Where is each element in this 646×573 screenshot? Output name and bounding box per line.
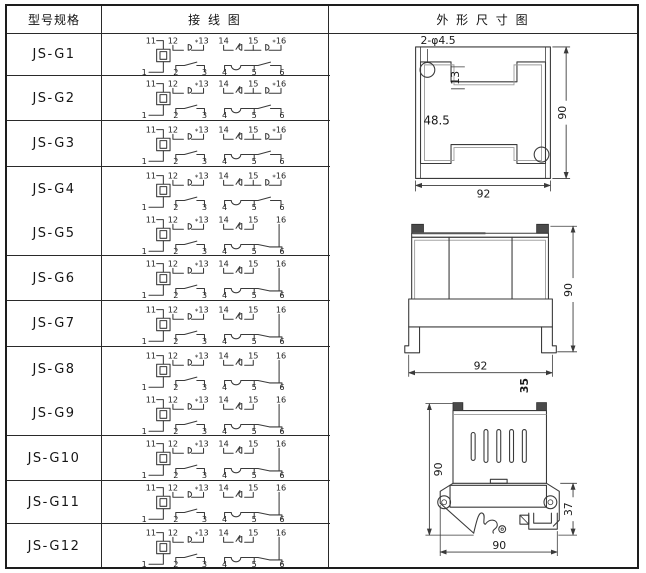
wiring-diagram: 11 12 13 14 15 16 1 2 3 4 5 6 bbox=[109, 302, 321, 346]
model-label: JS-G8 bbox=[32, 362, 75, 377]
terminal-16: 16 bbox=[276, 214, 286, 224]
model-cell: JS-G7 bbox=[7, 301, 102, 346]
terminal-13: 13 bbox=[198, 439, 208, 449]
model-cell: JS-G12 bbox=[7, 524, 102, 569]
terminal-14: 14 bbox=[218, 79, 228, 89]
model-label: JS-G4 bbox=[32, 182, 75, 197]
terminal-12: 12 bbox=[168, 79, 178, 89]
terminal-14: 14 bbox=[218, 527, 228, 537]
terminal-14: 14 bbox=[218, 35, 228, 45]
terminal-16: 16 bbox=[276, 259, 286, 269]
terminal-12: 12 bbox=[168, 304, 178, 314]
wiring-diagram: 11 12 13 14 15 16 1 2 3 4 5 6 bbox=[109, 122, 321, 166]
wiring-diagram: 11 12 13 14 15 16 1 2 3 4 5 6 bbox=[109, 525, 321, 569]
terminal-15: 15 bbox=[248, 439, 258, 449]
wiring-cell: 11 12 13 14 15 16 1 2 3 4 5 6 bbox=[102, 524, 329, 569]
wiring-cell: 11 12 13 14 15 16 1 2 3 4 5 6 bbox=[102, 167, 329, 212]
terminal-11: 11 bbox=[146, 35, 156, 45]
model-cell: JS-G3 bbox=[7, 121, 102, 166]
terminal-16: 16 bbox=[276, 304, 286, 314]
terminal-13: 13 bbox=[198, 394, 208, 404]
terminal-6: 6 bbox=[279, 202, 284, 212]
model-cell: JS-G11 bbox=[7, 481, 102, 523]
outline-drawings: 13 2-φ4.5 48.5 90 92 bbox=[330, 34, 637, 567]
terminal-16: 16 bbox=[276, 439, 286, 449]
terminal-11: 11 bbox=[146, 214, 156, 224]
table-header: 型号规格 接 线 图 外 形 尺 寸 图 bbox=[7, 6, 637, 34]
terminal-12: 12 bbox=[168, 394, 178, 404]
terminal-14: 14 bbox=[218, 304, 228, 314]
terminal-1: 1 bbox=[142, 470, 147, 480]
outline-dimension-cell: 13 2-φ4.5 48.5 90 92 bbox=[330, 34, 637, 567]
terminal-13: 13 bbox=[198, 259, 208, 269]
wiring-diagram: 11 12 13 14 15 16 1 2 3 4 5 6 bbox=[109, 256, 321, 300]
front-depth-dim: 35 bbox=[518, 378, 531, 393]
terminal-12: 12 bbox=[168, 35, 178, 45]
relay-spec-table: 型号规格 接 线 图 外 形 尺 寸 图 JS-G1 11 12 13 14 1… bbox=[5, 4, 639, 569]
terminal-1: 1 bbox=[142, 559, 147, 569]
terminal-1: 1 bbox=[142, 67, 147, 77]
terminal-13: 13 bbox=[198, 483, 208, 493]
model-cell: JS-G5 bbox=[7, 212, 102, 255]
terminal-12: 12 bbox=[168, 527, 178, 537]
model-cell: JS-G8 bbox=[7, 347, 102, 392]
terminal-11: 11 bbox=[146, 170, 156, 180]
model-rows: JS-G1 11 12 13 14 15 16 1 2 3 4 5 6 bbox=[7, 34, 330, 569]
terminal-14: 14 bbox=[218, 394, 228, 404]
wiring-diagram: 11 12 13 14 15 16 1 2 3 4 5 6 bbox=[109, 436, 321, 480]
table-row: JS-G12 11 12 13 14 15 16 1 2 3 4 5 6 bbox=[7, 524, 330, 569]
panel-width-dim: 92 bbox=[477, 187, 491, 200]
model-label: JS-G10 bbox=[28, 451, 81, 466]
table-row: JS-G7 11 12 13 14 15 16 1 2 3 4 5 6 bbox=[7, 301, 330, 347]
terminal-15: 15 bbox=[248, 170, 258, 180]
wiring-cell: 11 12 13 14 15 16 1 2 3 4 5 6 bbox=[102, 301, 329, 346]
din-rail-profile bbox=[520, 513, 557, 529]
table-row: JS-G3 11 12 13 14 15 16 1 2 3 4 5 6 bbox=[7, 121, 330, 167]
panel-cutout-dim: 48.5 bbox=[423, 114, 449, 128]
terminal-15: 15 bbox=[248, 79, 258, 89]
terminal-15: 15 bbox=[248, 35, 258, 45]
model-label: JS-G11 bbox=[28, 495, 81, 510]
model-label: JS-G1 bbox=[32, 47, 75, 62]
terminal-15: 15 bbox=[248, 259, 258, 269]
model-label: JS-G6 bbox=[32, 271, 75, 286]
terminal-6: 6 bbox=[279, 156, 284, 166]
terminal-13: 13 bbox=[198, 79, 208, 89]
table-row: JS-G11 11 12 13 14 15 16 1 2 3 4 5 6 bbox=[7, 481, 330, 524]
wiring-diagram: 11 12 13 14 15 16 1 2 3 4 5 6 bbox=[109, 480, 321, 524]
wiring-cell: 11 12 13 14 15 16 1 2 3 4 5 6 bbox=[102, 436, 329, 480]
terminal-13: 13 bbox=[198, 527, 208, 537]
terminal-12: 12 bbox=[168, 350, 178, 360]
terminal-1: 1 bbox=[142, 156, 147, 166]
model-label: JS-G9 bbox=[32, 406, 75, 421]
table-row: JS-G9 11 12 13 14 15 16 1 2 3 4 5 6 bbox=[7, 392, 330, 436]
wiring-diagram: 11 12 13 14 15 16 1 2 3 4 5 6 bbox=[109, 212, 321, 256]
terminal-12: 12 bbox=[168, 259, 178, 269]
table-row: JS-G10 11 12 13 14 15 16 1 2 3 4 5 6 bbox=[7, 436, 330, 481]
model-label: JS-G12 bbox=[28, 539, 81, 554]
terminal-12: 12 bbox=[168, 170, 178, 180]
panel-holes-note: 2-φ4.5 bbox=[421, 34, 456, 47]
terminal-16: 16 bbox=[276, 527, 286, 537]
terminal-11: 11 bbox=[146, 527, 156, 537]
wiring-cell: 11 12 13 14 15 16 1 2 3 4 5 6 bbox=[102, 256, 329, 300]
model-cell: JS-G10 bbox=[7, 436, 102, 480]
side-height-dim: 90 bbox=[432, 462, 445, 476]
terminal-15: 15 bbox=[248, 350, 258, 360]
wiring-cell: 11 12 13 14 15 16 1 2 3 4 5 6 bbox=[102, 34, 329, 75]
front-view-drawing: 92 90 35 bbox=[405, 224, 577, 393]
terminal-1: 1 bbox=[142, 336, 147, 346]
wiring-cell: 11 12 13 14 15 16 1 2 3 4 5 6 bbox=[102, 121, 329, 166]
terminal-15: 15 bbox=[248, 214, 258, 224]
table-row: JS-G6 11 12 13 14 15 16 1 2 3 4 5 6 bbox=[7, 256, 330, 301]
terminal-6: 6 bbox=[279, 110, 284, 120]
terminal-12: 12 bbox=[168, 214, 178, 224]
terminal-12: 12 bbox=[168, 483, 178, 493]
wiring-cell: 11 12 13 14 15 16 1 2 3 4 5 6 bbox=[102, 392, 329, 435]
terminal-11: 11 bbox=[146, 394, 156, 404]
terminal-1: 1 bbox=[142, 290, 147, 300]
terminal-16: 16 bbox=[276, 394, 286, 404]
terminal-14: 14 bbox=[218, 259, 228, 269]
model-label: JS-G7 bbox=[32, 316, 75, 331]
wiring-diagram: 11 12 13 14 15 16 1 2 3 4 5 6 bbox=[109, 348, 321, 392]
wiring-diagram: 11 12 13 14 15 16 1 2 3 4 5 6 bbox=[109, 168, 321, 212]
wiring-cell: 11 12 13 14 15 16 1 2 3 4 5 6 bbox=[102, 481, 329, 523]
terminal-1: 1 bbox=[142, 202, 147, 212]
terminal-6: 6 bbox=[279, 67, 284, 77]
terminal-16: 16 bbox=[276, 79, 286, 89]
terminal-11: 11 bbox=[146, 304, 156, 314]
terminal-14: 14 bbox=[218, 439, 228, 449]
terminal-1: 1 bbox=[142, 110, 147, 120]
terminal-1: 1 bbox=[142, 382, 147, 392]
terminal-11: 11 bbox=[146, 350, 156, 360]
terminal-15: 15 bbox=[248, 527, 258, 537]
terminal-11: 11 bbox=[146, 483, 156, 493]
table-row: JS-G5 11 12 13 14 15 16 1 2 3 4 5 6 bbox=[7, 212, 330, 256]
terminal-11: 11 bbox=[146, 439, 156, 449]
model-label: JS-G2 bbox=[32, 91, 75, 106]
panel-height-dim: 90 bbox=[556, 106, 569, 120]
terminal-16: 16 bbox=[276, 483, 286, 493]
table-row: JS-G1 11 12 13 14 15 16 1 2 3 4 5 6 bbox=[7, 34, 330, 76]
terminal-15: 15 bbox=[248, 483, 258, 493]
terminal-14: 14 bbox=[218, 124, 228, 134]
side-view-drawing: 90 37 90 bbox=[425, 403, 577, 556]
terminal-14: 14 bbox=[218, 170, 228, 180]
table-row: JS-G8 11 12 13 14 15 16 1 2 3 4 5 6 bbox=[7, 347, 330, 392]
side-width-dim: 90 bbox=[492, 539, 506, 552]
terminal-15: 15 bbox=[248, 304, 258, 314]
model-cell: JS-G4 bbox=[7, 167, 102, 212]
terminal-11: 11 bbox=[146, 79, 156, 89]
terminal-13: 13 bbox=[198, 170, 208, 180]
terminal-11: 11 bbox=[146, 124, 156, 134]
wiring-diagram: 11 12 13 14 15 16 1 2 3 4 5 6 bbox=[109, 392, 321, 436]
terminal-13: 13 bbox=[198, 124, 208, 134]
wiring-cell: 11 12 13 14 15 16 1 2 3 4 5 6 bbox=[102, 76, 329, 120]
table-body: JS-G1 11 12 13 14 15 16 1 2 3 4 5 6 bbox=[7, 34, 637, 567]
terminal-15: 15 bbox=[248, 394, 258, 404]
table-row: JS-G4 11 12 13 14 15 16 1 2 3 4 5 6 bbox=[7, 167, 330, 212]
terminal-1: 1 bbox=[142, 246, 147, 256]
terminal-14: 14 bbox=[218, 214, 228, 224]
panel-notch-dim: 13 bbox=[449, 71, 462, 85]
terminal-12: 12 bbox=[168, 124, 178, 134]
header-model-spec: 型号规格 bbox=[7, 6, 102, 33]
terminal-13: 13 bbox=[198, 35, 208, 45]
terminal-16: 16 bbox=[276, 170, 286, 180]
table-row: JS-G2 11 12 13 14 15 16 1 2 3 4 5 6 bbox=[7, 76, 330, 121]
model-cell: JS-G1 bbox=[7, 34, 102, 75]
terminal-16: 16 bbox=[276, 124, 286, 134]
header-outline-dims: 外 形 尺 寸 图 bbox=[329, 6, 637, 33]
wiring-cell: 11 12 13 14 15 16 1 2 3 4 5 6 bbox=[102, 212, 329, 255]
terminal-11: 11 bbox=[146, 259, 156, 269]
model-label: JS-G3 bbox=[32, 136, 75, 151]
wiring-diagram: 11 12 13 14 15 16 1 2 3 4 5 6 bbox=[109, 33, 321, 77]
model-cell: JS-G9 bbox=[7, 392, 102, 435]
front-width-dim: 92 bbox=[474, 360, 488, 373]
model-cell: JS-G6 bbox=[7, 256, 102, 300]
model-label: JS-G5 bbox=[32, 226, 75, 241]
terminal-14: 14 bbox=[218, 350, 228, 360]
terminal-13: 13 bbox=[198, 304, 208, 314]
terminal-15: 15 bbox=[248, 124, 258, 134]
wiring-diagram: 11 12 13 14 15 16 1 2 3 4 5 6 bbox=[109, 76, 321, 120]
terminal-16: 16 bbox=[276, 350, 286, 360]
side-clamp-dim: 37 bbox=[562, 502, 575, 516]
terminal-13: 13 bbox=[198, 214, 208, 224]
wiring-cell: 11 12 13 14 15 16 1 2 3 4 5 6 bbox=[102, 347, 329, 392]
terminal-13: 13 bbox=[198, 350, 208, 360]
terminal-1: 1 bbox=[142, 514, 147, 524]
terminal-16: 16 bbox=[276, 35, 286, 45]
terminal-14: 14 bbox=[218, 483, 228, 493]
header-wiring-diagram: 接 线 图 bbox=[102, 6, 329, 33]
front-height-dim: 90 bbox=[562, 283, 575, 297]
vent-slots bbox=[471, 430, 526, 463]
panel-cutout-drawing: 13 2-φ4.5 48.5 90 92 bbox=[416, 34, 570, 200]
terminal-1: 1 bbox=[142, 426, 147, 436]
terminal-12: 12 bbox=[168, 439, 178, 449]
model-cell: JS-G2 bbox=[7, 76, 102, 120]
